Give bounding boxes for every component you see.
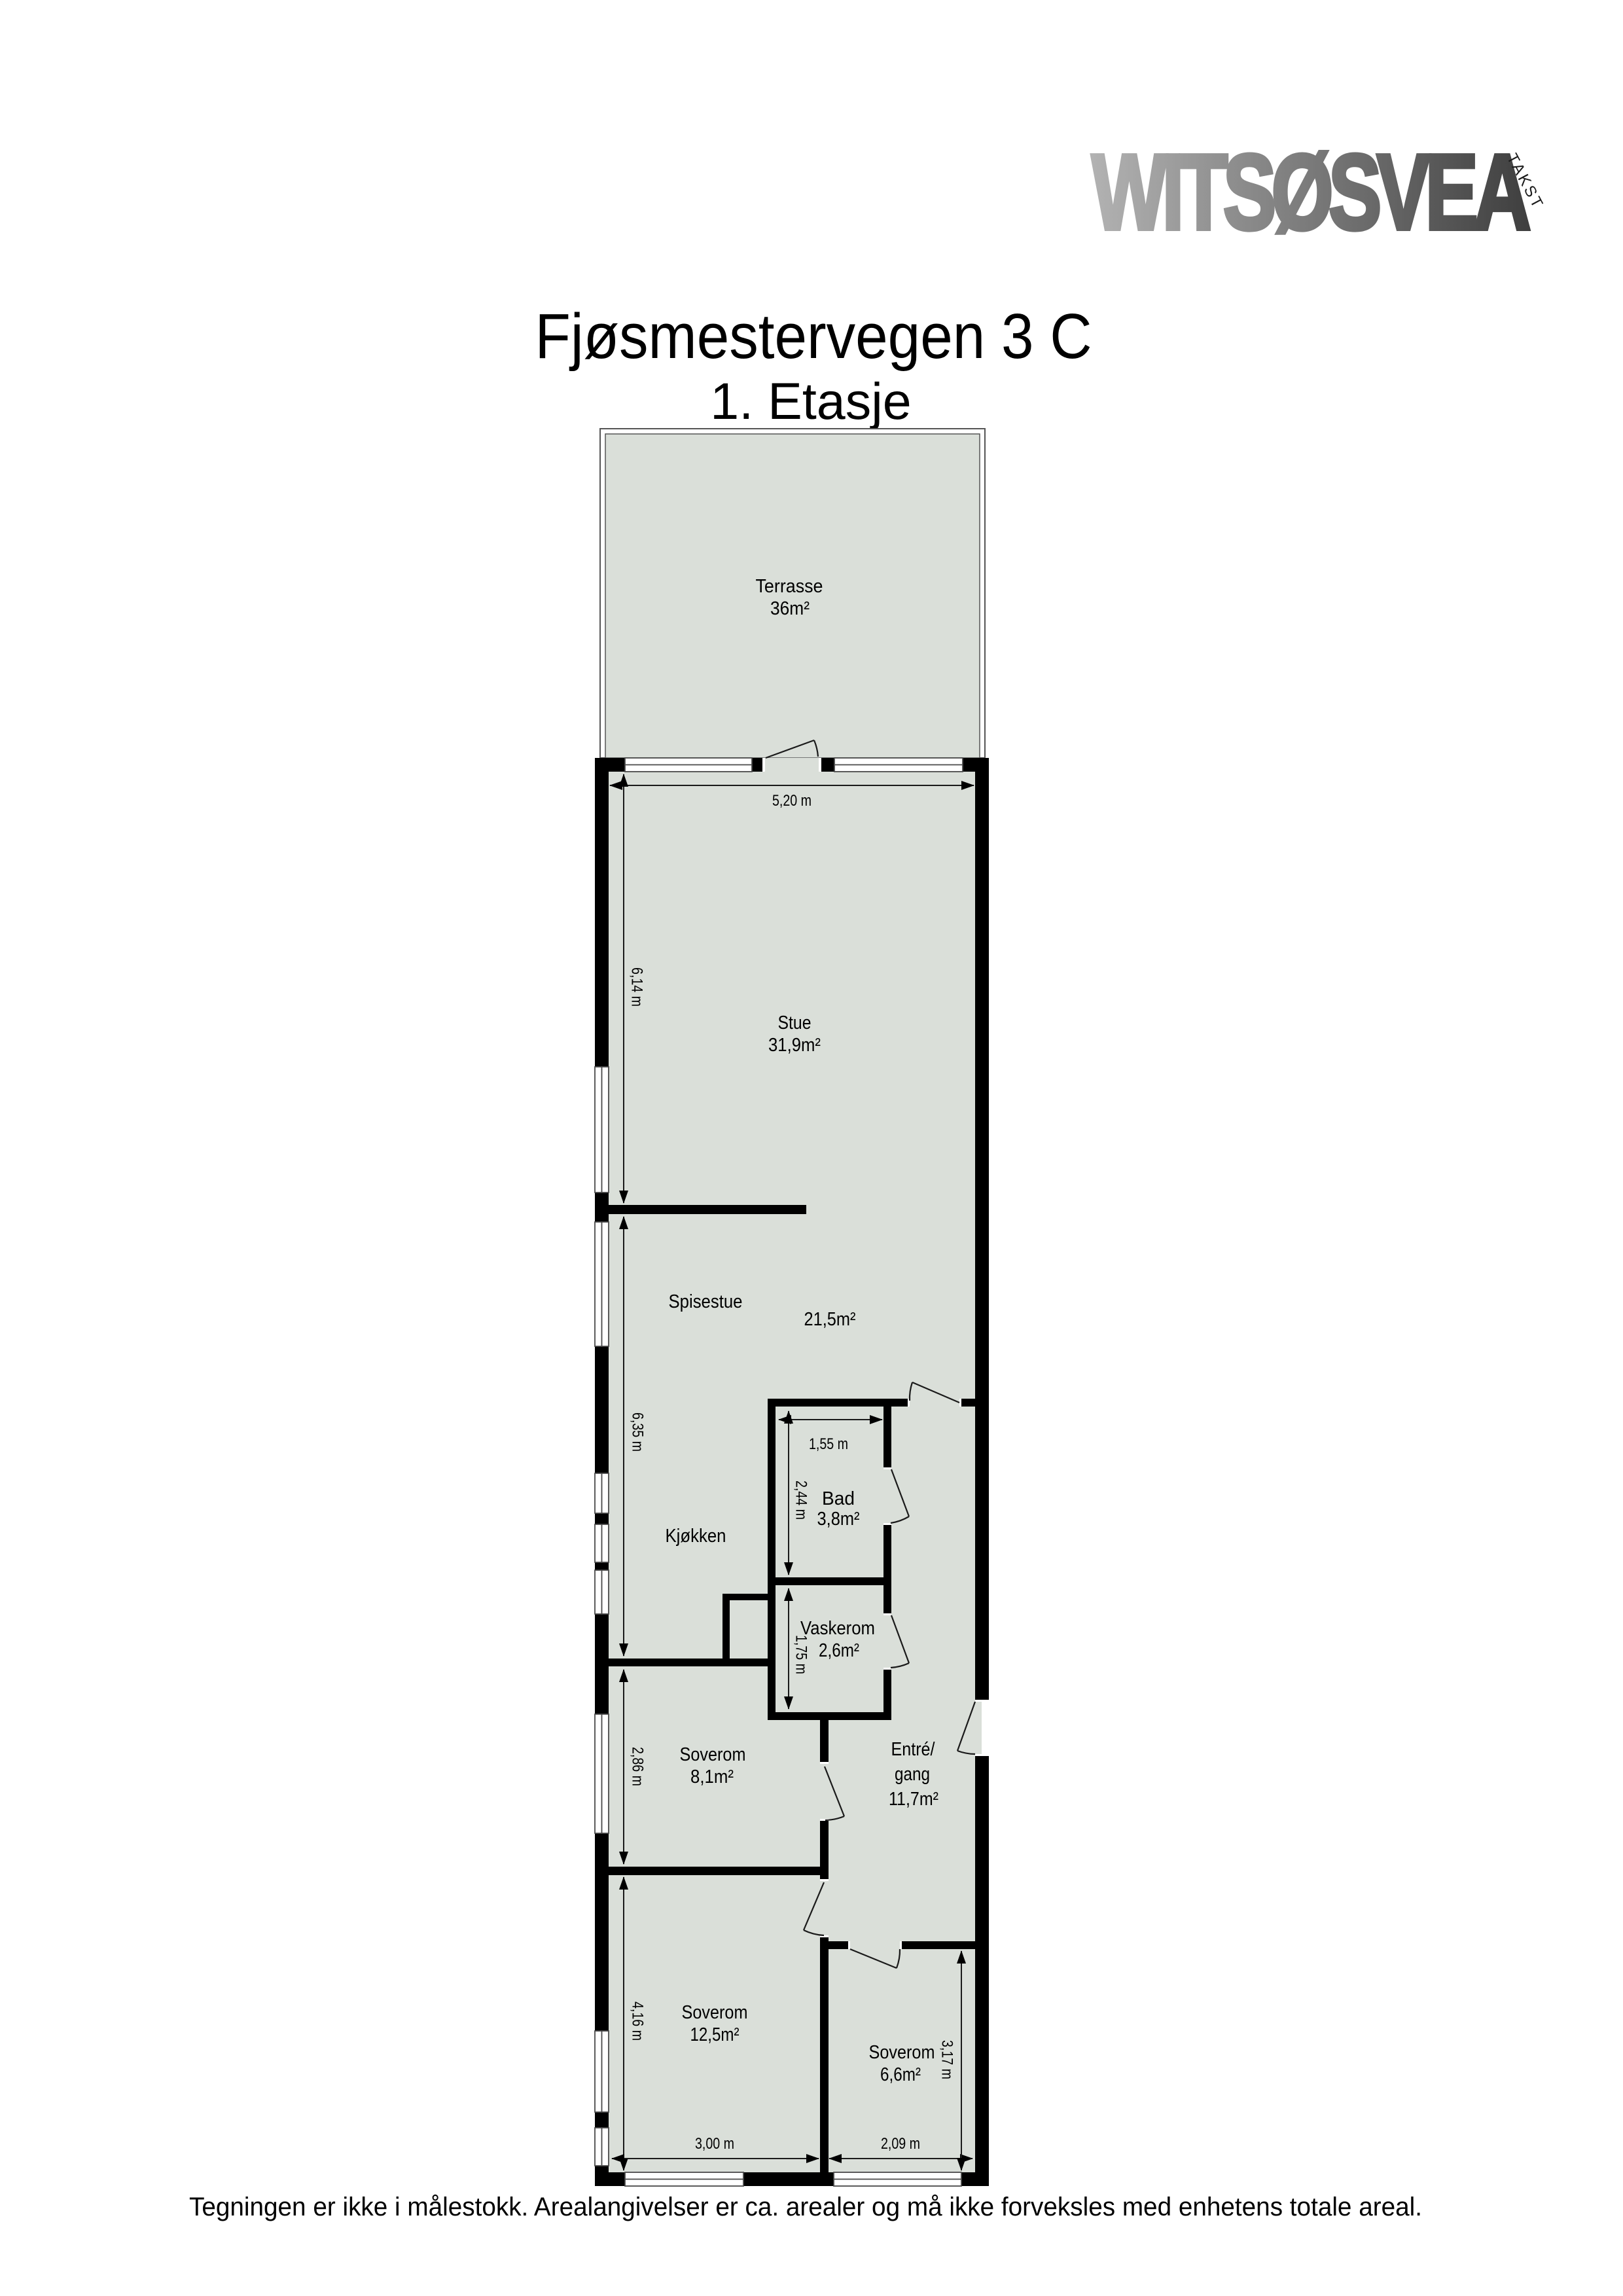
svg-text:3,00 m: 3,00 m [695, 2135, 734, 2153]
svg-text:1. Etasje: 1. Etasje [710, 372, 911, 430]
svg-text:21,5m²: 21,5m² [804, 1309, 856, 1330]
svg-text:1,75 m: 1,75 m [793, 1635, 810, 1674]
svg-text:2,44 m: 2,44 m [793, 1480, 810, 1520]
svg-text:2,6m²: 2,6m² [819, 1640, 859, 1661]
svg-text:Stue: Stue [778, 1013, 811, 1033]
svg-text:31,9m²: 31,9m² [768, 1035, 821, 1056]
svg-text:Soverom: Soverom [869, 2042, 935, 2063]
svg-text:6,6m²: 6,6m² [880, 2064, 921, 2085]
svg-text:6,35 m: 6,35 m [629, 1412, 647, 1452]
svg-text:8,1m²: 8,1m² [690, 1767, 734, 1787]
svg-text:Tegningen er ikke i målestokk.: Tegningen er ikke i målestokk. Arealangi… [189, 2193, 1422, 2221]
svg-text:3,17 m: 3,17 m [938, 2040, 956, 2079]
svg-text:Soverom: Soverom [680, 1744, 746, 1765]
svg-text:36m²: 36m² [770, 598, 810, 619]
svg-text:gang: gang [895, 1764, 930, 1785]
svg-text:WITSØSVEA: WITSØSVEA [1092, 132, 1529, 252]
svg-text:12,5m²: 12,5m² [690, 2024, 740, 2045]
svg-text:11,7m²: 11,7m² [889, 1789, 938, 1810]
svg-text:Kjøkken: Kjøkken [666, 1526, 726, 1547]
svg-text:Soverom: Soverom [682, 2002, 748, 2023]
svg-text:2,09 m: 2,09 m [881, 2135, 920, 2153]
svg-text:4,16 m: 4,16 m [629, 2001, 647, 2041]
svg-text:Fjøsmestervegen 3 C: Fjøsmestervegen 3 C [535, 300, 1092, 372]
svg-text:Spisestue: Spisestue [669, 1291, 743, 1312]
svg-text:3,8m²: 3,8m² [817, 1509, 860, 1530]
svg-text:1,55 m: 1,55 m [809, 1435, 848, 1453]
svg-text:Vaskerom: Vaskerom [800, 1618, 875, 1639]
svg-text:2,86 m: 2,86 m [629, 1747, 647, 1786]
svg-text:6,14 m: 6,14 m [628, 967, 646, 1007]
svg-text:Entré/: Entré/ [891, 1739, 936, 1760]
svg-text:Bad: Bad [822, 1488, 855, 1509]
svg-text:Terrasse: Terrasse [756, 576, 823, 597]
svg-text:5,20 m: 5,20 m [772, 792, 811, 810]
